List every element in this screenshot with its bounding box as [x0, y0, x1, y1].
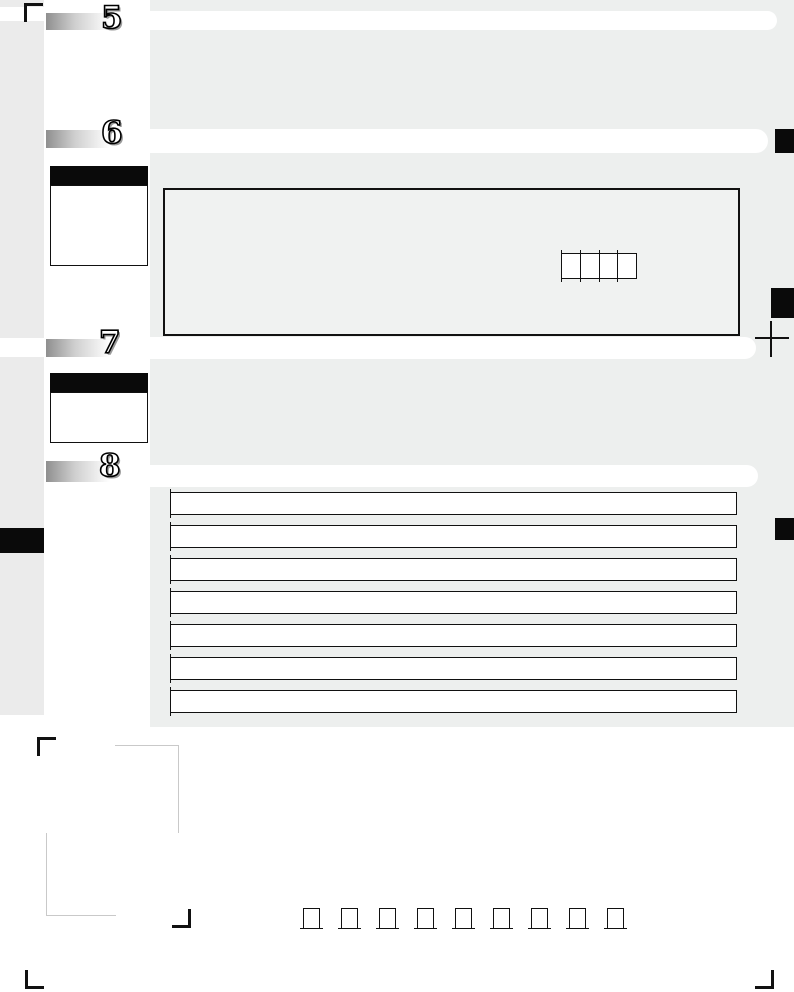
section-7-label-header-bar — [50, 373, 148, 392]
code-box-grid — [561, 253, 637, 279]
section-separator-4 — [148, 465, 758, 487]
crosshair-mark-vertical — [770, 321, 772, 357]
bottom-checkbox[interactable] — [379, 908, 396, 929]
section-6-label-box[interactable] — [50, 185, 148, 266]
left-column-upper — [0, 21, 44, 338]
bottom-checkbox-row — [303, 908, 624, 929]
registration-mark-bottom-right — [755, 970, 774, 989]
bottom-checkbox[interactable] — [341, 908, 358, 929]
left-column-middle — [0, 357, 44, 528]
bottom-checkbox[interactable] — [455, 908, 472, 929]
section-7-number: 7 — [99, 328, 121, 359]
bottom-checkbox[interactable] — [493, 908, 510, 929]
registration-mark-mid-left — [37, 737, 56, 756]
section-8-number: 8 — [99, 451, 121, 482]
right-edge-timing-mark-2 — [771, 288, 794, 318]
registration-mark-top-left — [24, 3, 43, 22]
section-5-number: 5 — [101, 3, 123, 34]
left-column-lower — [0, 553, 44, 715]
crosshair-mark-horizontal — [755, 337, 789, 339]
code-cell[interactable] — [600, 254, 619, 278]
char-grid-row — [170, 690, 737, 713]
right-edge-timing-mark-1 — [775, 129, 794, 153]
left-edge-black-timing-mark — [0, 528, 44, 553]
alignment-guide-top-right — [115, 745, 179, 833]
bottom-checkbox[interactable] — [417, 908, 434, 929]
code-cell[interactable] — [618, 254, 636, 278]
section-separator-2 — [148, 129, 768, 153]
right-edge-timing-mark-3 — [775, 518, 794, 540]
section-6-number: 6 — [101, 118, 123, 149]
code-cell[interactable] — [562, 254, 581, 278]
char-grid — [170, 492, 737, 723]
char-grid-row — [170, 591, 737, 614]
bottom-checkbox[interactable] — [303, 908, 320, 929]
registration-mark-bottom-left — [25, 970, 44, 989]
char-grid-row — [170, 657, 737, 680]
bottom-checkbox[interactable] — [531, 908, 548, 929]
section-7-label-box[interactable] — [50, 392, 148, 443]
code-cell[interactable] — [581, 254, 600, 278]
char-grid-row — [170, 624, 737, 647]
char-grid-row — [170, 492, 737, 515]
char-grid-row — [170, 525, 737, 548]
section-6-entry-box[interactable] — [163, 188, 740, 336]
section-separator-1 — [148, 11, 777, 30]
bottom-checkbox[interactable] — [607, 908, 624, 929]
registration-mark-inner-bottom-right — [172, 909, 191, 928]
scanned-form-page: 5 6 7 8 — [0, 0, 794, 992]
section-6-label-header-bar — [50, 166, 148, 185]
bottom-checkbox[interactable] — [569, 908, 586, 929]
section-separator-3 — [148, 337, 756, 359]
alignment-guide-bottom-left — [46, 833, 116, 916]
char-grid-row — [170, 558, 737, 581]
